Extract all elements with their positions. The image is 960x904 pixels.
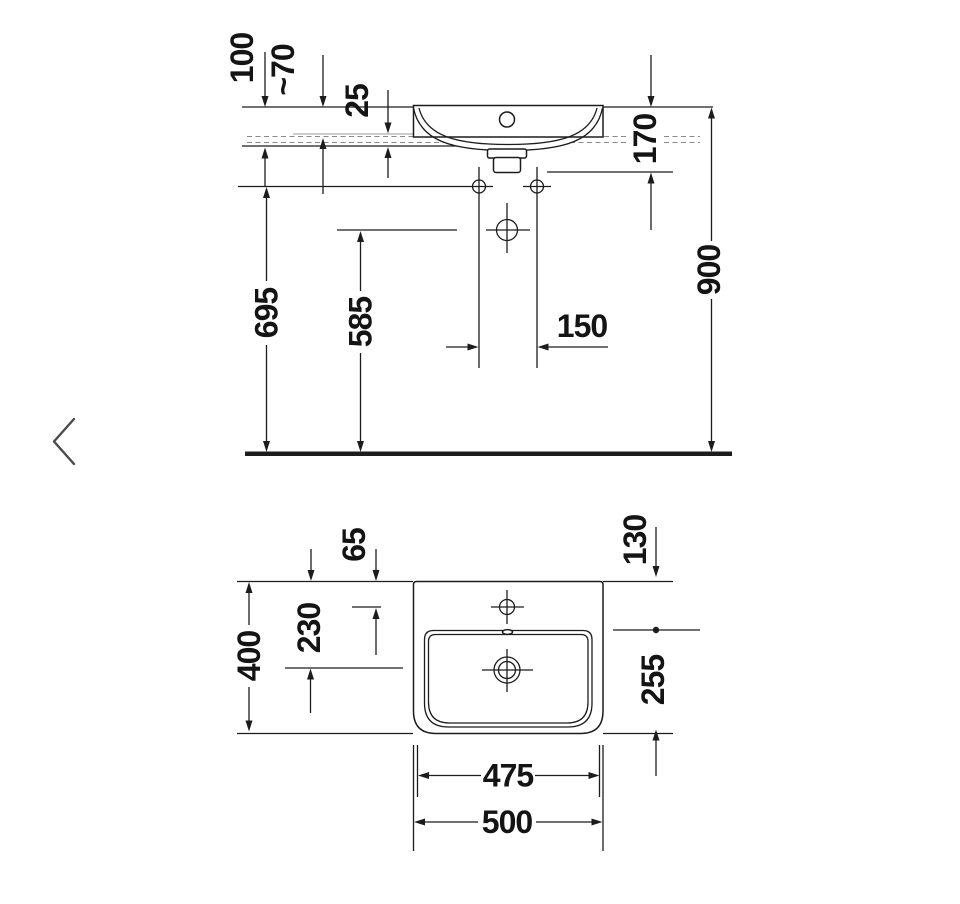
washbasin-plan-outline [414, 582, 604, 734]
dim-585: 585 [343, 231, 379, 452]
dim-130: 130 [617, 515, 659, 634]
dim-label-100: 100 [224, 33, 260, 84]
dim-label-230: 230 [291, 603, 327, 654]
drain-outlet-front [488, 149, 527, 173]
dim-label-130: 130 [617, 515, 653, 566]
dim-255: 255 [635, 655, 671, 776]
dim-label-150: 150 [557, 308, 608, 344]
chevron-left-icon [42, 408, 86, 474]
dim-label-475: 475 [483, 758, 534, 794]
dim-label-70: ~70 [265, 44, 301, 95]
faucet-hole-front [500, 112, 515, 127]
plan-view: 65 230 400 [231, 515, 700, 851]
dim-label-400: 400 [231, 631, 267, 682]
product-image-viewer: 100 ~70 25 [0, 0, 960, 904]
dim-label-255: 255 [635, 655, 671, 706]
dim-400: 400 [231, 582, 267, 732]
dim-100: 100 [224, 33, 268, 186]
dim-label-695: 695 [249, 288, 285, 339]
dim-label-65: 65 [336, 528, 372, 562]
front-elevation-view: 100 ~70 25 [224, 33, 732, 456]
dim-230: 230 [291, 549, 327, 713]
dim-70: ~70 [265, 44, 326, 194]
mounting-holes [238, 167, 551, 368]
dim-label-500: 500 [482, 804, 533, 840]
dim-475: 475 [418, 758, 600, 794]
dim-25: 25 [339, 84, 391, 178]
dim-label-25: 25 [339, 84, 375, 118]
dim-label-900: 900 [691, 245, 727, 296]
dim-500: 500 [414, 804, 603, 840]
dim-label-585: 585 [343, 297, 379, 348]
floor-line [245, 452, 732, 457]
washbasin-front-outline [414, 106, 604, 173]
dim-900: 900 [691, 108, 727, 453]
dim-label-170: 170 [627, 114, 663, 165]
reference-point-dot [653, 627, 659, 633]
dim-695: 695 [249, 187, 285, 452]
dim-150: 150 [446, 308, 608, 350]
overflow-marker [503, 630, 513, 635]
dim-65: 65 [336, 528, 379, 655]
carousel-prev-button[interactable] [42, 408, 86, 474]
drain-pipe-center [337, 203, 530, 253]
technical-drawing: 100 ~70 25 [0, 0, 960, 904]
